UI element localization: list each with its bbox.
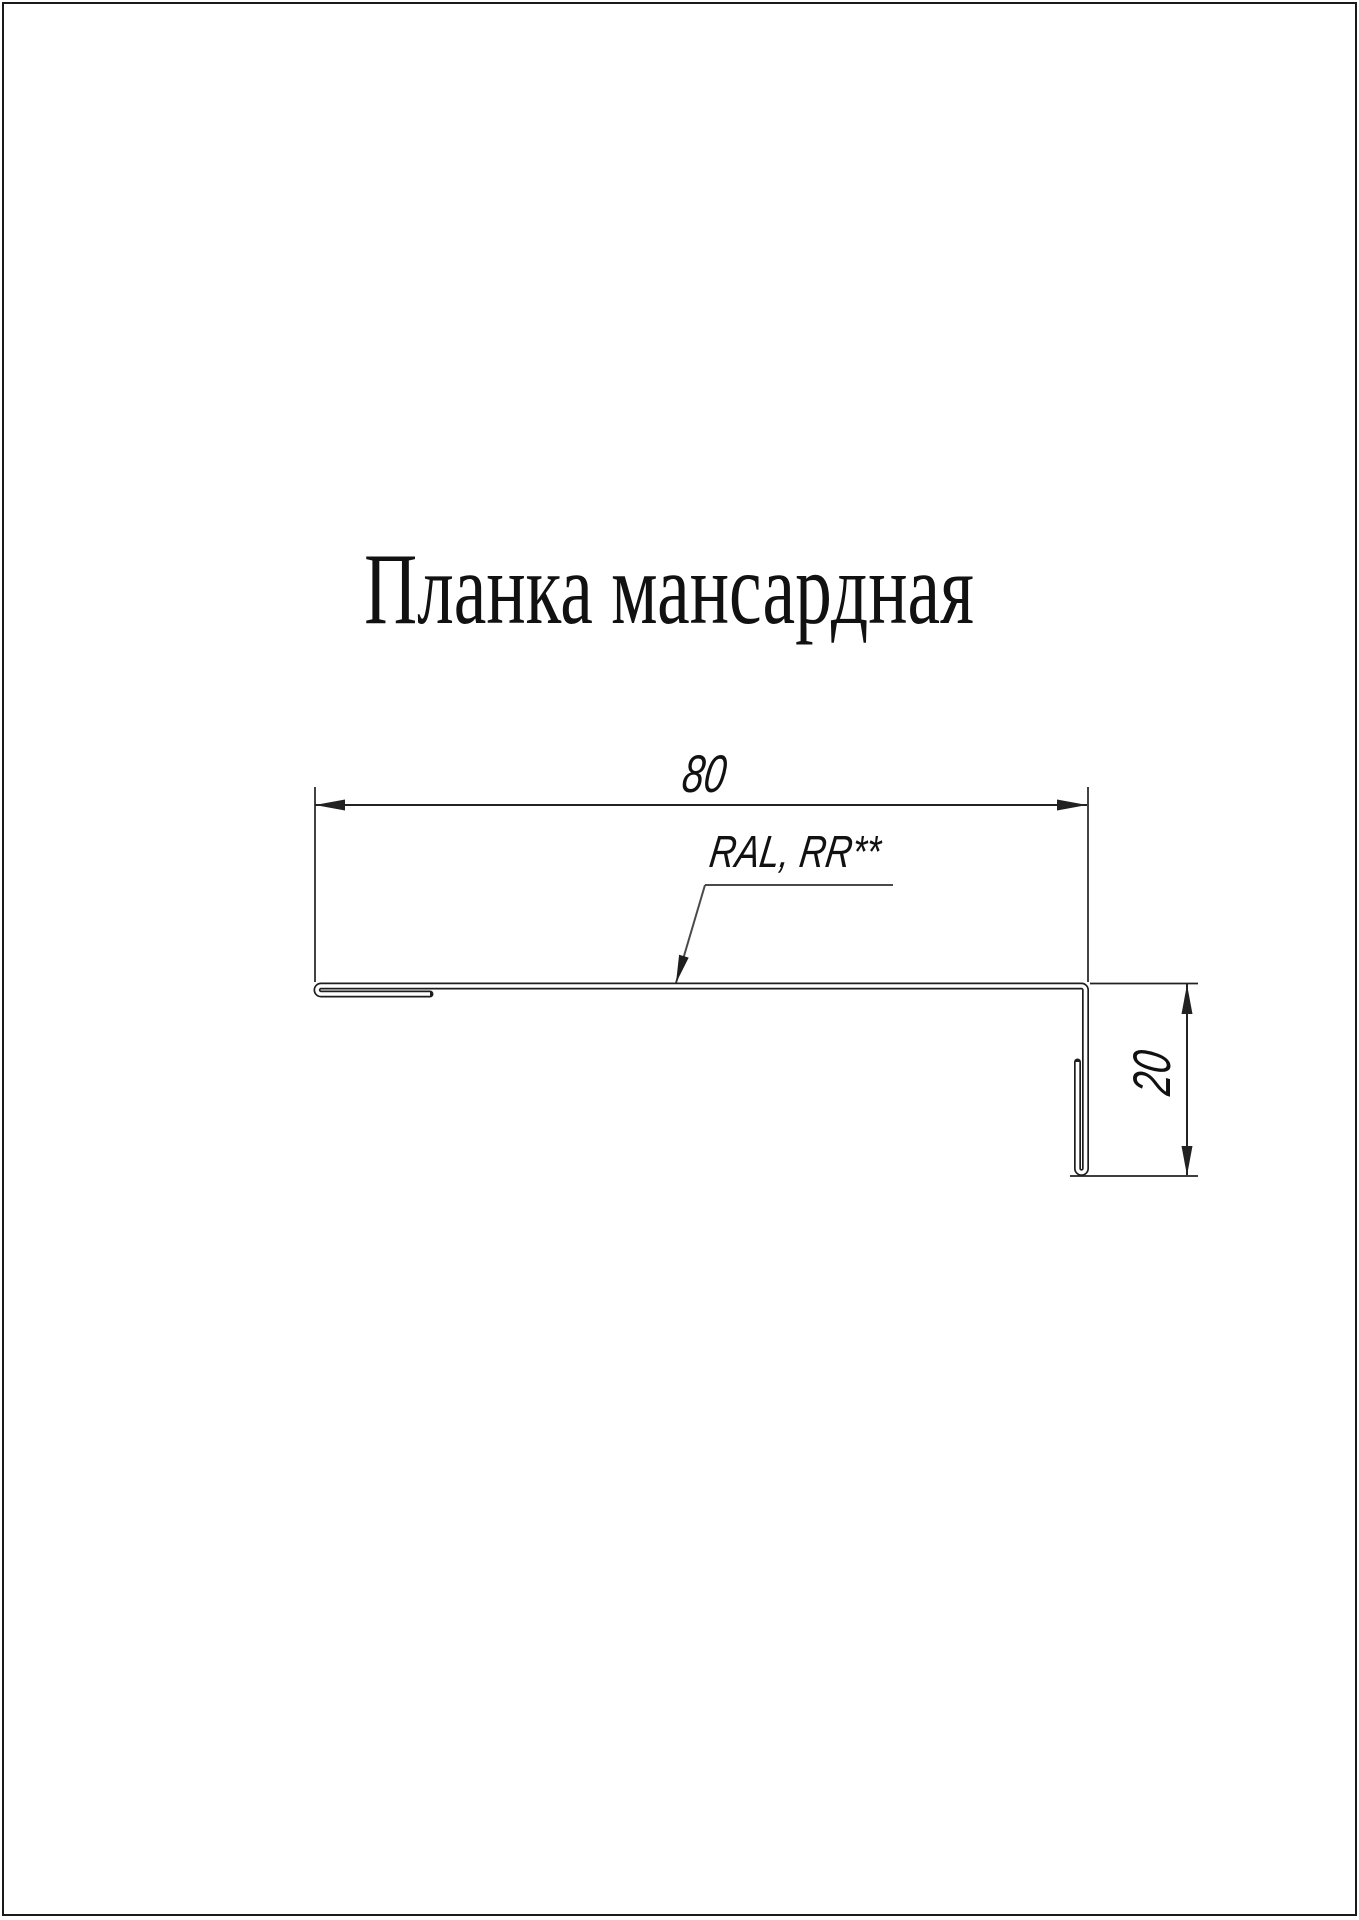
- arrowhead-left-icon: [315, 800, 345, 811]
- page-title: Планка мансардная: [364, 533, 974, 645]
- dimension-width-value: 80: [679, 744, 730, 803]
- drawing-page: Планка мансардная 80 RAL, RR** 20: [0, 0, 1359, 1920]
- arrowhead-right-icon: [1057, 800, 1087, 811]
- arrowhead-down-icon: [1182, 1146, 1193, 1176]
- technical-drawing: Планка мансардная 80 RAL, RR** 20: [0, 0, 1359, 1920]
- coating-label: RAL, RR**: [707, 826, 886, 876]
- dimension-height-value: 20: [1122, 1047, 1181, 1099]
- leader-arrowhead-icon: [676, 955, 689, 983]
- profile-outline: [317, 986, 1086, 1173]
- arrowhead-up-icon: [1182, 985, 1193, 1015]
- profile-core: [317, 986, 1086, 1173]
